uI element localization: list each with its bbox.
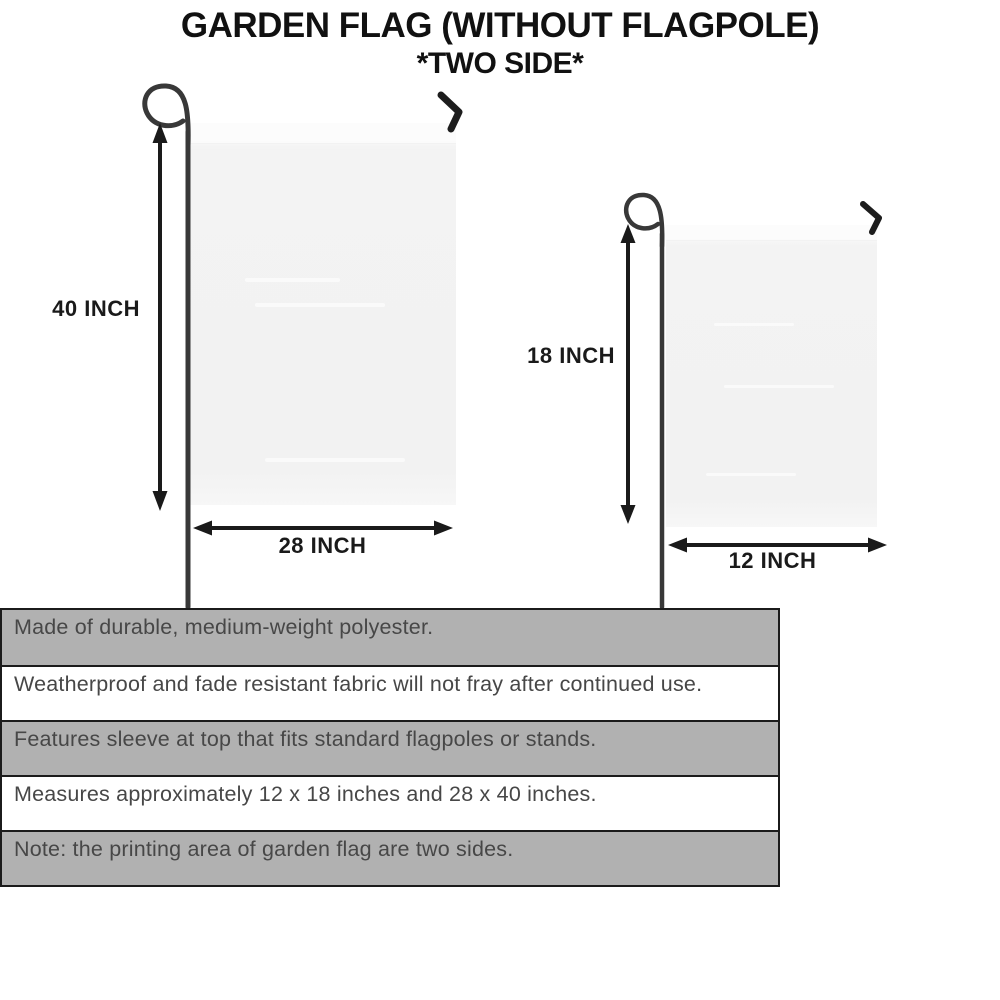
small-flag-sleeve <box>666 225 877 241</box>
feature-row: Made of durable, medium-weight polyester… <box>2 610 778 665</box>
feature-row: Measures approximately 12 x 18 inches an… <box>2 775 778 830</box>
small-height-arrow <box>621 224 636 524</box>
crease-mark <box>265 458 405 462</box>
product-info-image: GARDEN FLAG (WITHOUT FLAGPOLE) *TWO SIDE… <box>0 0 1000 1000</box>
crease-mark <box>706 473 796 476</box>
feature-row: Features sleeve at top that fits standar… <box>2 720 778 775</box>
large-height-arrow <box>153 123 168 511</box>
page-title: GARDEN FLAG (WITHOUT FLAGPOLE) *TWO SIDE… <box>0 6 1000 81</box>
features-table: Made of durable, medium-weight polyester… <box>0 608 780 887</box>
large-flag-width-label: 28 INCH <box>240 533 405 559</box>
feature-row: Weatherproof and fade resistant fabric w… <box>2 665 778 720</box>
large-flagpole <box>145 86 188 607</box>
crease-mark <box>245 278 340 282</box>
large-flag-canvas <box>190 123 456 505</box>
small-flag-canvas <box>666 225 877 527</box>
feature-row: Note: the printing area of garden flag a… <box>2 830 778 885</box>
small-flag-height-label: 18 INCH <box>515 343 615 369</box>
crease-mark <box>714 323 794 326</box>
large-flag-height-label: 40 INCH <box>40 296 140 322</box>
small-flagpole <box>626 195 662 607</box>
title-line-1: GARDEN FLAG (WITHOUT FLAGPOLE) <box>0 6 1000 46</box>
large-flag-sleeve <box>190 123 456 144</box>
title-line-2: *TWO SIDE* <box>0 47 1000 81</box>
crease-mark <box>724 385 834 388</box>
small-flag-width-label: 12 INCH <box>690 548 855 574</box>
crease-mark <box>255 303 385 307</box>
